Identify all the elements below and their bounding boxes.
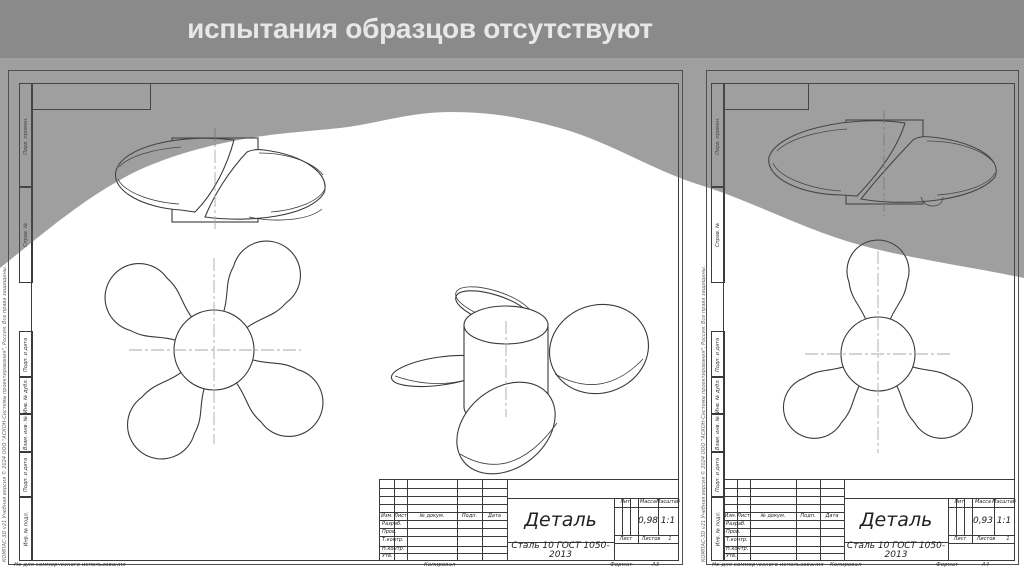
col-list: Лист xyxy=(737,512,750,520)
listov-label: Листов xyxy=(972,535,1000,543)
masshtab-label: Масштаб xyxy=(658,498,678,507)
massa-label: Масса xyxy=(638,498,658,507)
non-commercial-note: Не для коммерческого использования xyxy=(14,562,126,568)
lit-label: Лит. xyxy=(614,498,638,507)
plan-view-drawing xyxy=(92,228,337,473)
col-date: Дата xyxy=(820,512,844,520)
copied-label: Копировал xyxy=(424,562,455,568)
drawing-sheet-a3: Перв. примен. Справ. № Подп. и дата Инв.… xyxy=(8,70,683,565)
front-view-drawing xyxy=(115,128,325,231)
format-value: А4 xyxy=(982,562,989,568)
material: Сталь 10 ГОСТ 1050-2013 xyxy=(844,542,948,560)
col-podp: Подп. xyxy=(457,512,482,520)
listov-value: 1 xyxy=(664,535,676,543)
list-label: Лист xyxy=(614,535,638,543)
col-doc: № докум. xyxy=(407,512,457,520)
massa-label: Масса xyxy=(972,498,994,507)
format-value: А3 xyxy=(652,562,659,568)
part-name: Деталь xyxy=(507,498,614,542)
drawing-sheet-a4: Перв. примен. Справ. № Подп. и дата Инв.… xyxy=(706,70,1019,565)
kompas-watermark: КОМПАС-3D v21 Учебная версия © 2024 ООО … xyxy=(701,266,707,562)
plan-view-drawing xyxy=(771,240,985,453)
title-block: Изм. Лист № докум. Подп. Дата Разраб. Пр… xyxy=(723,479,1015,561)
front-view-drawing xyxy=(769,111,997,216)
material: Сталь 10 ГОСТ 1050-2013 xyxy=(507,542,614,560)
row-razrab: Разраб. xyxy=(382,520,408,528)
lit-label: Лит. xyxy=(948,498,972,507)
copied-label: Копировал xyxy=(830,562,861,568)
list-label: Лист xyxy=(948,535,972,543)
format-label: Формат xyxy=(936,562,958,568)
kompas-watermark: КОМПАС-3D v21 Учебная версия © 2024 ООО … xyxy=(2,266,8,562)
scale-value: 1:1 xyxy=(658,507,678,535)
mass-value: 0,93 xyxy=(972,507,994,535)
part-name: Деталь xyxy=(844,498,948,542)
row-prov: Пров. xyxy=(726,528,751,536)
answer-banner: испытания образцов отсутствуют xyxy=(0,0,1024,58)
title-block: Изм. Лист № докум. Подп. Дата Разраб. Пр… xyxy=(379,479,679,561)
row-prov: Пров. xyxy=(382,528,408,536)
format-label: Формат xyxy=(610,562,632,568)
row-nkontr: Н.контр. xyxy=(382,546,408,553)
mass-value: 0,98 xyxy=(638,507,658,535)
scale-value: 1:1 xyxy=(994,507,1014,535)
masshtab-label: Масштаб xyxy=(994,498,1014,507)
col-izm: Изм. xyxy=(380,512,394,520)
non-commercial-note: Не для коммерческого использования xyxy=(712,562,824,568)
row-tkontr: Т.контр. xyxy=(726,536,751,544)
col-izm: Изм. xyxy=(724,512,737,520)
row-nkontr: Н.контр. xyxy=(726,546,751,553)
col-date: Дата xyxy=(482,512,507,520)
row-utv: Утв. xyxy=(726,553,751,560)
col-list: Лист xyxy=(394,512,407,520)
row-tkontr: Т.контр. xyxy=(382,536,408,544)
listov-value: 1 xyxy=(1002,535,1014,543)
col-podp: Подп. xyxy=(796,512,820,520)
col-doc: № докум. xyxy=(750,512,796,520)
banner-text: испытания образцов отсутствуют xyxy=(187,13,653,45)
row-utv: Утв. xyxy=(382,553,408,560)
listov-label: Листов xyxy=(638,535,664,543)
isometric-view-drawing xyxy=(390,279,661,492)
row-razrab: Разраб. xyxy=(726,520,751,528)
